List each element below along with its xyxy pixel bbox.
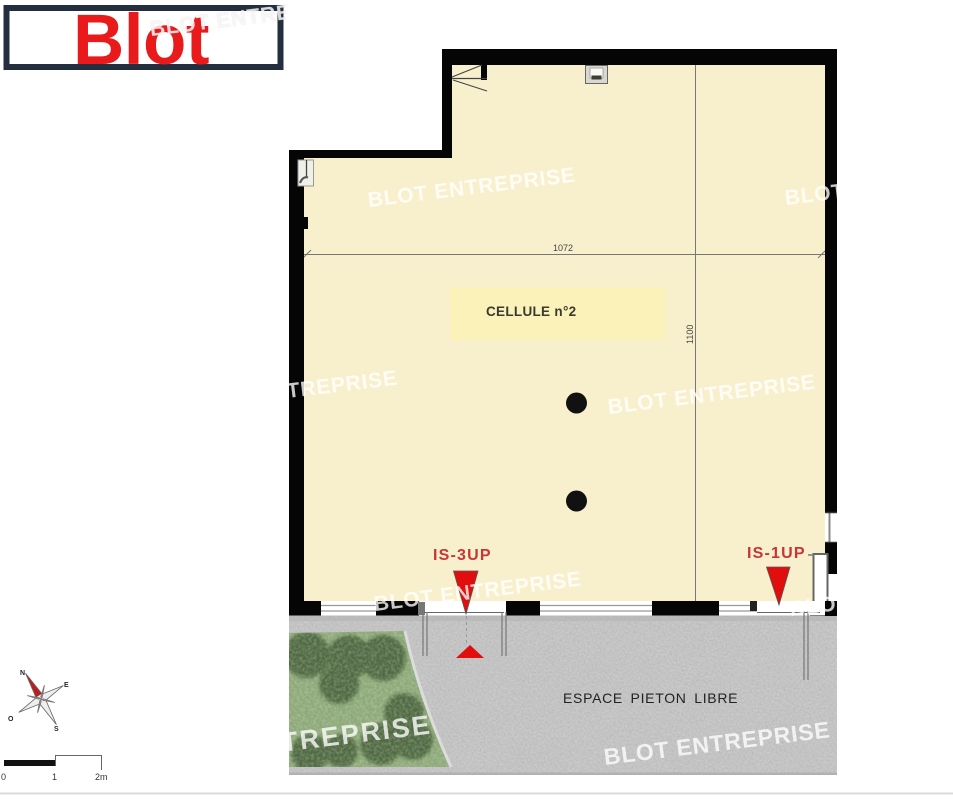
svg-text:2m: 2m	[95, 772, 108, 782]
svg-text:1072: 1072	[553, 243, 573, 253]
svg-text:1100: 1100	[685, 325, 695, 344]
svg-text:1: 1	[52, 772, 57, 782]
svg-text:IS-3UP: IS-3UP	[433, 547, 492, 564]
svg-text:O: O	[8, 716, 14, 723]
svg-text:S: S	[54, 726, 59, 733]
svg-text:CELLULE n°2: CELLULE n°2	[486, 304, 576, 319]
svg-text:0: 0	[1, 772, 6, 782]
svg-text:IS-1UP: IS-1UP	[747, 545, 806, 562]
svg-text:ESPACE PIETON LIBRE: ESPACE PIETON LIBRE	[563, 690, 738, 706]
svg-text:N: N	[20, 670, 25, 677]
svg-text:E: E	[64, 682, 69, 689]
